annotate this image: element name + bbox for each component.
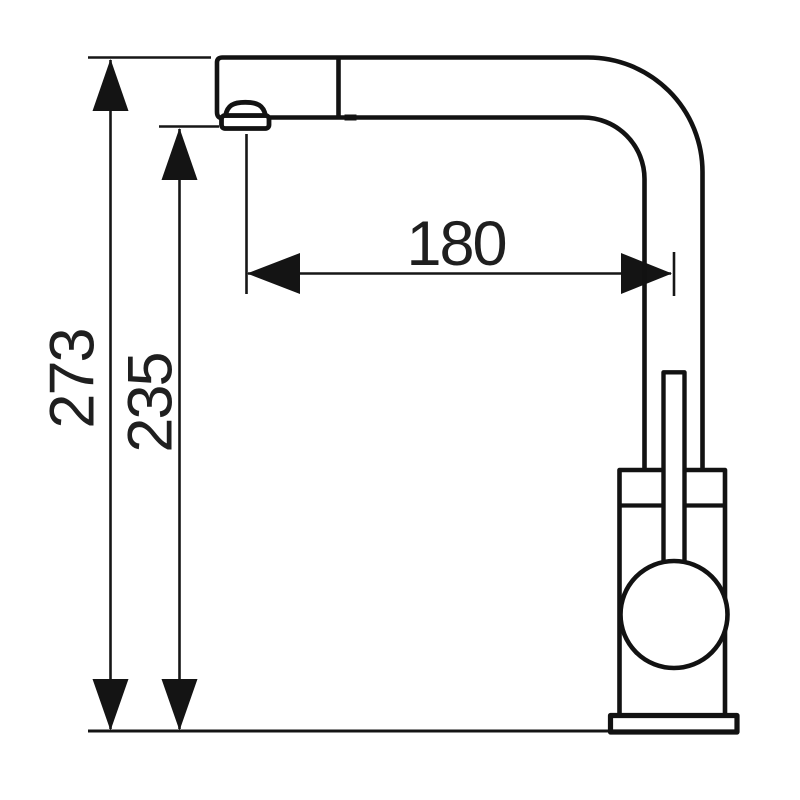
- drawing-canvas: 273 235 180: [0, 0, 800, 800]
- dimension-180-label: 180: [406, 209, 505, 279]
- dimension-235-label: 235: [116, 353, 186, 452]
- handle-ball: [621, 561, 728, 668]
- dimension-273-arrow-up-icon: [93, 59, 129, 111]
- spout-underside-notch: [345, 115, 357, 121]
- faucet-outline: [217, 58, 737, 733]
- dimension-235-arrow-down-icon: [162, 679, 198, 731]
- dimension-180-arrow-left-icon: [247, 253, 300, 294]
- spray-nozzle-dome: [226, 102, 266, 115]
- dimension-spout-reach: 180: [247, 134, 675, 296]
- dimension-273-label: 273: [38, 329, 108, 428]
- handle-lever-stem: [664, 372, 685, 572]
- dimension-outlet-height: 235: [116, 127, 220, 731]
- dimension-235-arrow-up-icon: [162, 128, 198, 180]
- dimension-273-arrow-down-icon: [93, 679, 129, 731]
- spout-inner-contour: [268, 118, 645, 470]
- base-plate: [611, 716, 738, 733]
